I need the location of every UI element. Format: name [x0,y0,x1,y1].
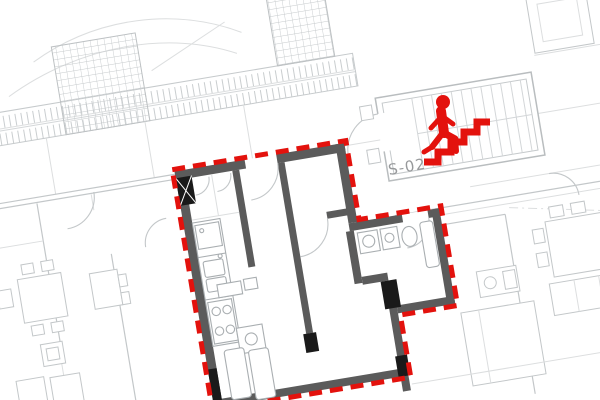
armchair [0,289,14,309]
fridge [195,222,223,250]
floor-plan-canvas: S-02 [0,0,600,400]
cabinet [16,377,49,400]
dining-table-left [17,272,68,323]
hatch-block-left [51,33,150,135]
bed-neighbor [461,301,546,386]
kitchen-sink [203,259,225,278]
floor-plan-drawing: S-02 [0,0,600,400]
dining-table-right [545,212,600,277]
